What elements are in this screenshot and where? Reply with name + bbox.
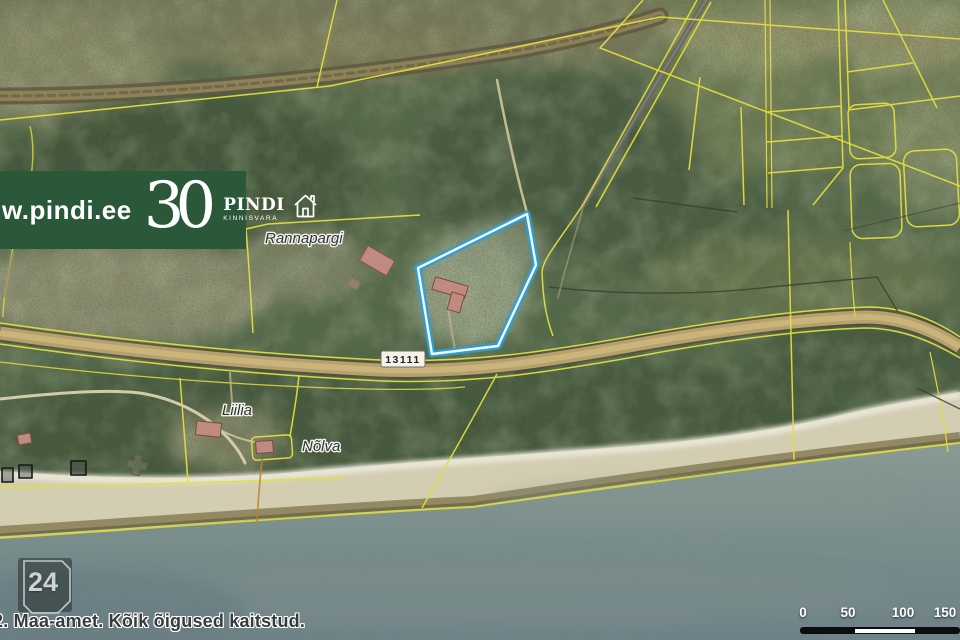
aerial-map[interactable]: 13111 Rannapargi Liilia Nõlva: [0, 0, 960, 640]
scale-label-100: 100: [892, 605, 915, 620]
copyright-attribution: 2. Maa-amet. Kõik õigused kaitstud.: [0, 611, 305, 632]
map-viewport: 13111 Rannapargi Liilia Nõlva w.pindi.ee…: [0, 0, 960, 640]
place-label-rannapargi: Rannapargi: [265, 230, 343, 247]
pindi-logo-banner: w.pindi.ee 30 PINDI KINNISVARA: [0, 171, 246, 249]
road-number-label: 13111: [385, 354, 421, 366]
place-label-liilia: Liilia: [222, 402, 252, 419]
place-label-nolva: Nõlva: [302, 438, 340, 455]
pindi-brand-sub: KINNISVARA: [223, 216, 284, 223]
house-roof: [195, 421, 221, 438]
scale-label-0: 0: [799, 605, 807, 620]
map-sheet-badge: 24: [17, 556, 77, 616]
pindi-30-years: 30: [144, 174, 208, 238]
scale-bar: 0 50 100 150: [796, 605, 960, 640]
road-number-badge: 13111: [381, 351, 425, 367]
map-sheet-number: 24: [28, 567, 58, 598]
pindi-brand: PINDI KINNISVARA: [223, 197, 284, 223]
scale-bar-track: [800, 627, 960, 634]
pindi-website-text: w.pindi.ee: [2, 195, 132, 226]
scale-label-50: 50: [840, 605, 855, 620]
house-icon: [292, 192, 319, 225]
scale-bar-segment: [855, 629, 915, 633]
house-roof: [256, 440, 274, 453]
pindi-brand-name: PINDI: [223, 197, 284, 214]
scale-label-150: 150: [934, 605, 957, 620]
